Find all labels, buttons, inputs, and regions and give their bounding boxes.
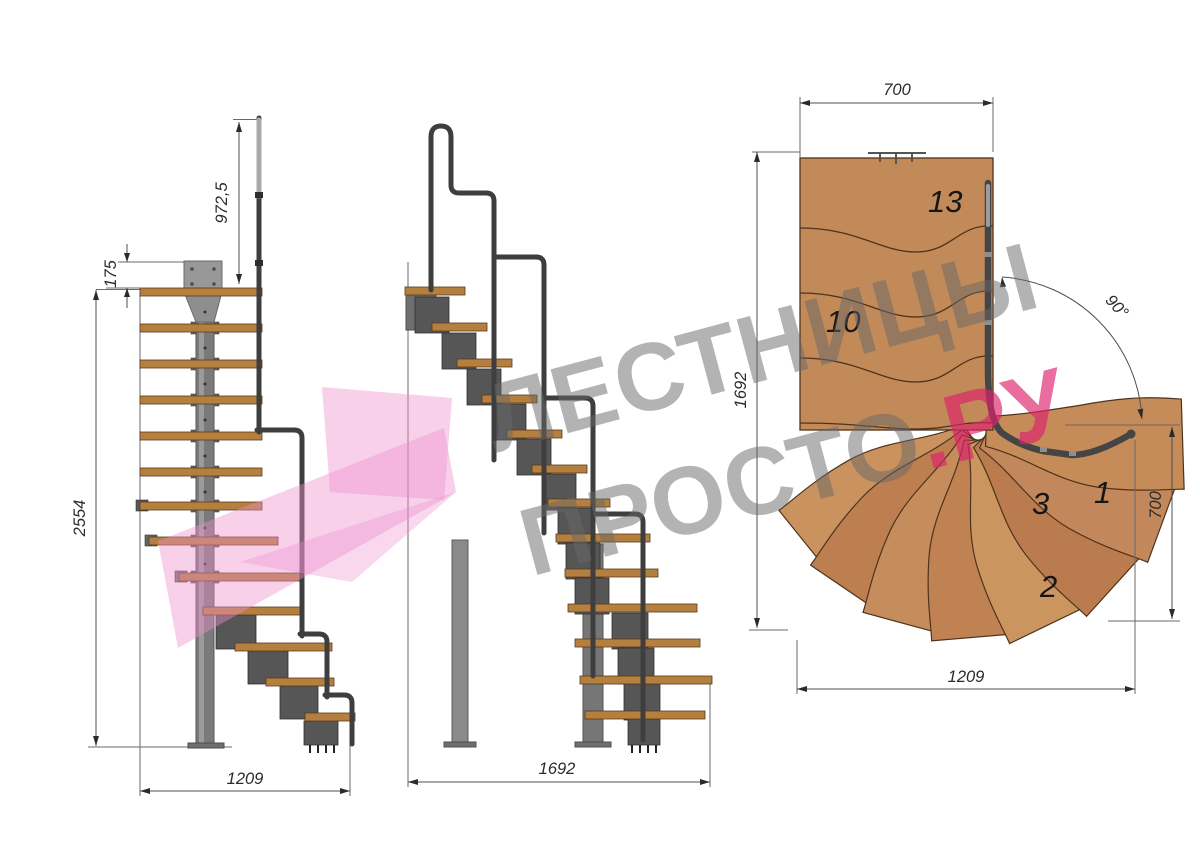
dim-total-height: 2554 [71,500,89,538]
dim-top-offset: 175 [102,259,120,287]
dim-plan-turn-angle: 90° [1102,291,1132,322]
dim-plan-top-width: 700 [883,81,911,99]
step-number-13: 13 [928,184,962,219]
technical-drawing-canvas: 972,5 175 2554 1209 [0,0,1200,849]
plan-view: 13 10 3 1 2 700 1692 90° 700 [732,81,1187,694]
front-dimensions: 1692 [408,760,710,785]
step-number-3: 3 [1032,486,1049,521]
side-column-taper [184,292,222,322]
step-number-10: 10 [826,304,860,339]
front-base-feet [632,745,656,753]
dim-front-run-length: 1692 [539,760,576,778]
side-elevation-view: 972,5 175 2554 1209 [71,118,355,796]
step-number-1: 1 [1094,475,1111,510]
dim-handrail-height: 972,5 [213,182,231,224]
side-base-feet [310,745,334,753]
dim-plan-right-width: 700 [1147,490,1165,518]
plan-straight-run [800,158,993,430]
step-number-2: 2 [1039,569,1057,604]
dim-plan-bottom-length: 1209 [948,668,985,686]
front-elevation-view: 1692 [405,126,712,787]
dim-plan-depth: 1692 [732,372,750,409]
staircase-drawing-page: 972,5 175 2554 1209 [0,0,1200,849]
side-structure [136,118,355,753]
side-mount-plate [184,261,222,292]
front-pillar-left [452,540,468,743]
dim-side-run-length: 1209 [227,770,264,788]
side-column-base-flange [188,743,224,748]
front-structure [405,126,712,753]
